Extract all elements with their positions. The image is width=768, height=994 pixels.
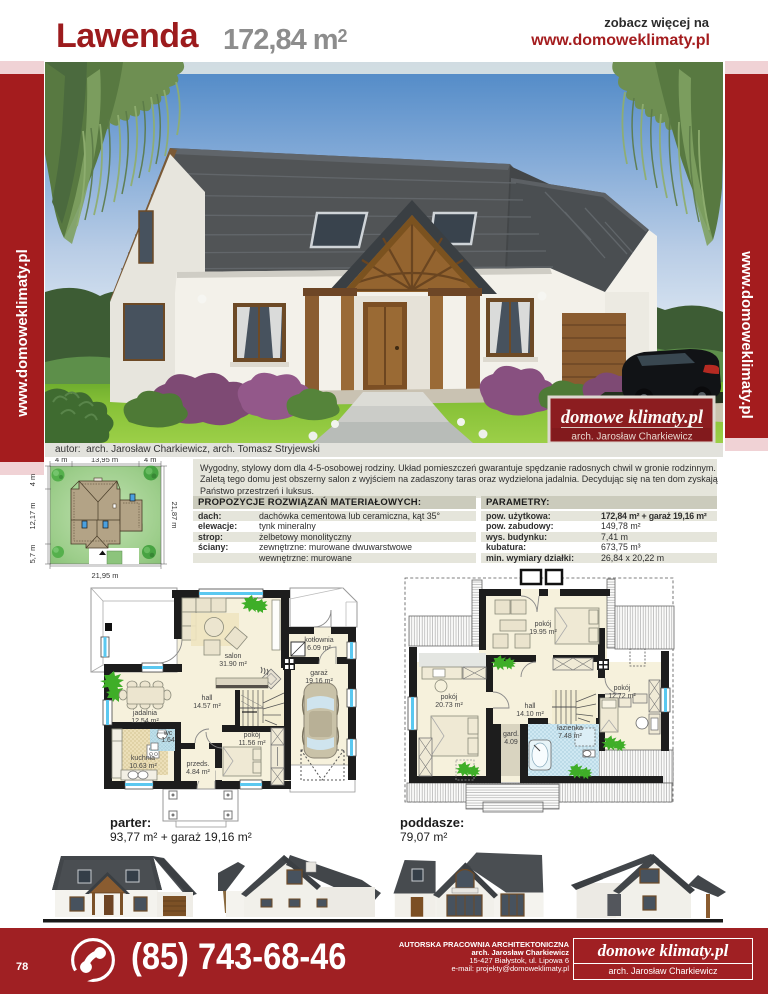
svg-text:hall: hall bbox=[525, 703, 536, 710]
svg-text:garaż: garaż bbox=[310, 670, 328, 677]
svg-text:20.73 m²: 20.73 m² bbox=[435, 702, 463, 709]
svg-text:pokój: pokój bbox=[614, 685, 631, 692]
svg-text:przeds.: przeds. bbox=[187, 761, 210, 768]
svg-text:kuchnia: kuchnia bbox=[131, 755, 155, 762]
svg-text:domowe klimaty.pl: domowe klimaty.pl bbox=[561, 408, 704, 428]
svg-text:12.72 m²: 12.72 m² bbox=[608, 693, 636, 700]
svg-text:11.56 m²: 11.56 m² bbox=[238, 740, 266, 747]
svg-text:4 m: 4 m bbox=[28, 474, 37, 487]
svg-text:5,7 m: 5,7 m bbox=[28, 545, 37, 564]
svg-text:19.16 m²: 19.16 m² bbox=[305, 678, 333, 685]
svg-text:hall: hall bbox=[202, 695, 213, 702]
svg-text:łazienka: łazienka bbox=[557, 725, 583, 732]
svg-text:31.90 m²: 31.90 m² bbox=[219, 661, 247, 668]
svg-text:19.95 m²: 19.95 m² bbox=[529, 629, 557, 636]
svg-text:4 m: 4 m bbox=[144, 458, 157, 464]
svg-text:1.64: 1.64 bbox=[161, 737, 175, 744]
svg-text:pokój: pokój bbox=[535, 621, 552, 628]
svg-text:gard.: gard. bbox=[503, 731, 519, 738]
svg-text:14.10 m²: 14.10 m² bbox=[516, 711, 544, 718]
svg-text:6.09 m²: 6.09 m² bbox=[307, 645, 331, 652]
svg-text:4 m: 4 m bbox=[55, 458, 68, 464]
svg-text:pokój: pokój bbox=[244, 732, 261, 739]
svg-text:4.09: 4.09 bbox=[504, 739, 518, 746]
svg-text:12,17 m: 12,17 m bbox=[28, 502, 37, 529]
svg-text:wc: wc bbox=[163, 730, 173, 737]
svg-text:jadalnia: jadalnia bbox=[132, 710, 157, 717]
svg-text:12.54 m²: 12.54 m² bbox=[131, 718, 159, 725]
svg-text:salon: salon bbox=[225, 653, 242, 660]
svg-text:kotłownia: kotłownia bbox=[304, 637, 333, 644]
svg-text:13,95 m: 13,95 m bbox=[91, 458, 118, 464]
svg-text:pokój: pokój bbox=[441, 694, 458, 701]
svg-text:10.63 m²: 10.63 m² bbox=[129, 763, 157, 770]
svg-text:14.57 m²: 14.57 m² bbox=[193, 703, 221, 710]
svg-text:arch. Jarosław Charkiewicz: arch. Jarosław Charkiewicz bbox=[571, 432, 692, 443]
svg-text:7.48 m²: 7.48 m² bbox=[558, 733, 582, 740]
svg-text:21,87 m: 21,87 m bbox=[170, 501, 179, 528]
svg-text:4.84 m²: 4.84 m² bbox=[186, 769, 210, 776]
